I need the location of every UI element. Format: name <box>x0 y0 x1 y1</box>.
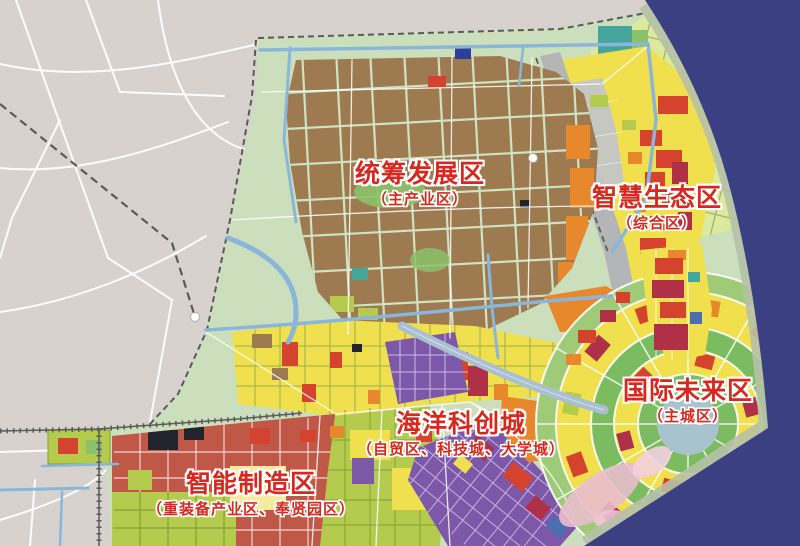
region-subtitle: （自贸区、科技城、大学城） <box>357 441 565 458</box>
region-title: 智能制造区 <box>147 470 355 498</box>
region-title: 海洋科创城 <box>357 410 565 438</box>
region-label-intelligent-manufacturing: 智能制造区 （重装备产业区、奉贤园区） <box>147 470 355 518</box>
region-subtitle: （综合区） <box>592 215 722 232</box>
region-title: 智慧生态区 <box>592 184 722 212</box>
region-subtitle: （主产业区） <box>355 191 485 208</box>
region-label-marine-scitech-city: 海洋科创城 （自贸区、科技城、大学城） <box>357 410 565 458</box>
region-title: 国际未来区 <box>623 377 753 405</box>
map-canvas <box>0 0 800 546</box>
region-title: 统筹发展区 <box>355 160 485 188</box>
planning-map: 统筹发展区 （主产业区） 智慧生态区 （综合区） 国际未来区 （主城区） 海洋科… <box>0 0 800 546</box>
region-subtitle: （重装备产业区、奉贤园区） <box>147 501 355 518</box>
region-label-smart-ecology: 智慧生态区 （综合区） <box>592 184 722 232</box>
region-label-coordinated-development: 统筹发展区 （主产业区） <box>355 160 485 208</box>
region-label-international-future: 国际未来区 （主城区） <box>623 377 753 425</box>
region-subtitle: （主城区） <box>623 408 753 425</box>
